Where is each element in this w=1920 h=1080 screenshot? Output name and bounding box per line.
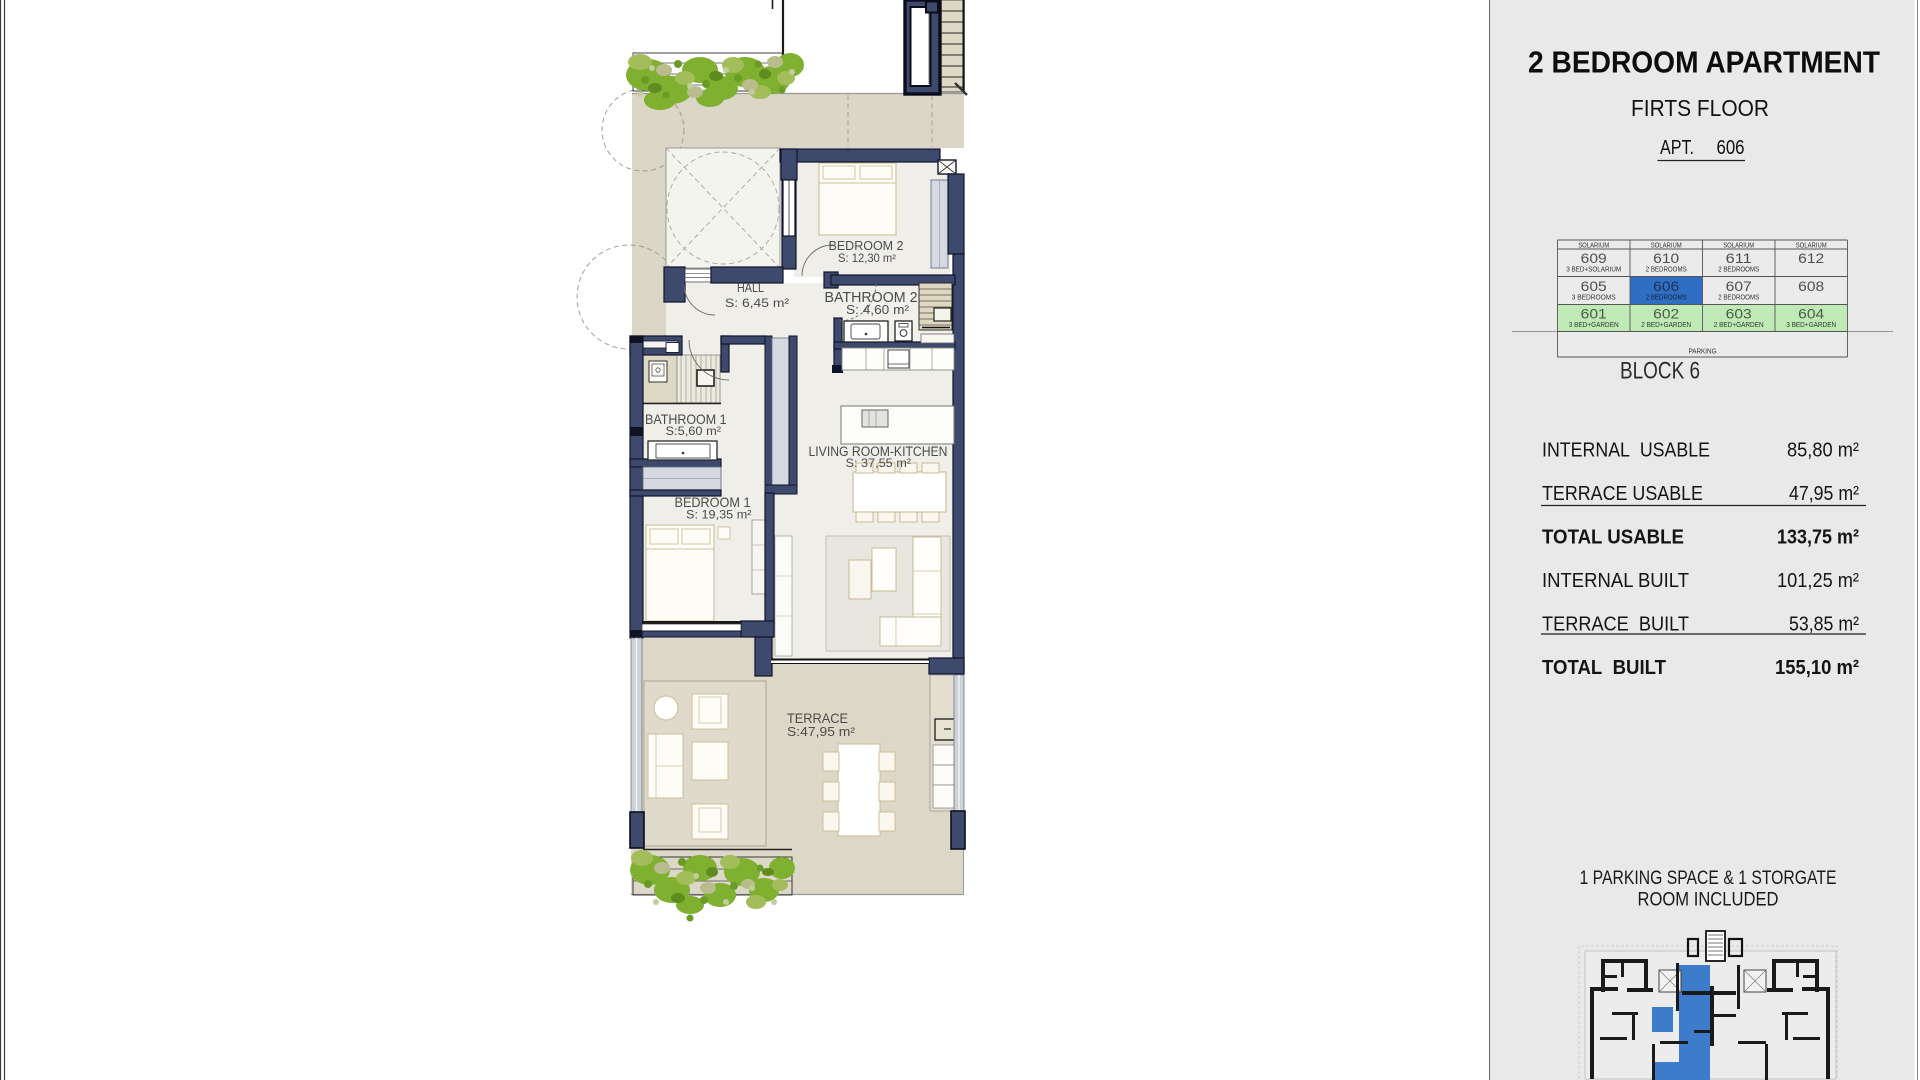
- svg-text:2 BEDROOMS: 2 BEDROOMS: [1718, 267, 1759, 274]
- svg-text:2 BEDROOMS: 2 BEDROOMS: [1718, 295, 1759, 302]
- svg-text:3 BED+GARDEN: 3 BED+GARDEN: [1569, 322, 1619, 329]
- svg-text:INTERNAL BUILT: INTERNAL BUILT: [1542, 569, 1689, 592]
- svg-text:S:5,60 m²: S:5,60 m²: [666, 424, 722, 438]
- svg-text:BEDROOM 2: BEDROOM 2: [829, 239, 904, 253]
- svg-text:APT.: APT.: [1660, 137, 1694, 159]
- svg-text:611: 611: [1726, 251, 1752, 266]
- svg-text:S: 12,30 m²: S: 12,30 m²: [838, 253, 896, 265]
- svg-text:TERRACE: TERRACE: [787, 710, 848, 726]
- svg-text:HALL: HALL: [737, 280, 764, 295]
- svg-text:3 BED+GARDEN: 3 BED+GARDEN: [1786, 322, 1836, 329]
- svg-text:53,85 m²: 53,85 m²: [1789, 613, 1859, 636]
- svg-text:604: 604: [1798, 307, 1825, 322]
- svg-text:2 BED+GARDEN: 2 BED+GARDEN: [1714, 322, 1764, 329]
- svg-text:1 PARKING SPACE & 1 STORGATE: 1 PARKING SPACE & 1 STORGATE: [1580, 868, 1837, 889]
- svg-text:PARKING: PARKING: [1689, 347, 1717, 356]
- svg-text:ROOM INCLUDED: ROOM INCLUDED: [1638, 890, 1779, 911]
- svg-text:601: 601: [1581, 307, 1607, 322]
- svg-text:TOTAL BUILT: TOTAL BUILT: [1542, 656, 1666, 679]
- svg-text:S: 6,45 m²: S: 6,45 m²: [725, 296, 789, 310]
- svg-text:610: 610: [1653, 251, 1679, 266]
- svg-text:609: 609: [1581, 251, 1607, 266]
- svg-text:133,75 m²: 133,75 m²: [1777, 526, 1859, 549]
- svg-text:605: 605: [1581, 279, 1607, 294]
- svg-text:3 BED+SOLARIUM: 3 BED+SOLARIUM: [1566, 267, 1621, 274]
- svg-text:SOLARIUM: SOLARIUM: [1651, 243, 1682, 250]
- svg-text:3 BEDROOMS: 3 BEDROOMS: [1572, 295, 1616, 302]
- svg-text:2 BEDROOMS: 2 BEDROOMS: [1646, 295, 1687, 302]
- svg-text:606: 606: [1653, 279, 1679, 294]
- svg-text:608: 608: [1798, 279, 1824, 294]
- svg-text:607: 607: [1726, 279, 1752, 294]
- svg-text:TERRACE USABLE: TERRACE USABLE: [1542, 482, 1703, 505]
- svg-text:85,80 m²: 85,80 m²: [1787, 439, 1859, 462]
- svg-text:47,95 m²: 47,95 m²: [1789, 482, 1859, 505]
- svg-text:603: 603: [1726, 307, 1752, 322]
- svg-text:602: 602: [1653, 307, 1679, 322]
- svg-text:155,10 m²: 155,10 m²: [1775, 656, 1859, 679]
- svg-text:SOLARIUM: SOLARIUM: [1578, 243, 1609, 250]
- svg-text:2 BEDROOM APARTMENT: 2 BEDROOM APARTMENT: [1528, 46, 1880, 80]
- svg-text:S: 19,35 m²: S: 19,35 m²: [686, 508, 752, 522]
- svg-text:612: 612: [1798, 251, 1824, 266]
- svg-text:101,25 m²: 101,25 m²: [1777, 569, 1859, 592]
- svg-text:FIRTS FLOOR: FIRTS FLOOR: [1631, 95, 1769, 121]
- svg-text:606: 606: [1717, 137, 1745, 159]
- svg-text:INTERNAL USABLE: INTERNAL USABLE: [1542, 439, 1710, 462]
- svg-text:2 BEDROOMS: 2 BEDROOMS: [1646, 267, 1687, 274]
- svg-text:S: 37,55 m²: S: 37,55 m²: [846, 456, 912, 470]
- svg-text:S: 4,60 m²: S: 4,60 m²: [846, 303, 909, 317]
- svg-text:S:47,95 m²: S:47,95 m²: [787, 725, 855, 739]
- svg-text:2 BED+GARDEN: 2 BED+GARDEN: [1641, 322, 1691, 329]
- svg-text:TOTAL USABLE: TOTAL USABLE: [1542, 526, 1684, 549]
- svg-text:SOLARIUM: SOLARIUM: [1723, 243, 1754, 250]
- svg-text:SOLARIUM: SOLARIUM: [1796, 243, 1827, 250]
- svg-text:TERRACE BUILT: TERRACE BUILT: [1542, 613, 1689, 636]
- svg-text:BLOCK 6: BLOCK 6: [1620, 358, 1700, 385]
